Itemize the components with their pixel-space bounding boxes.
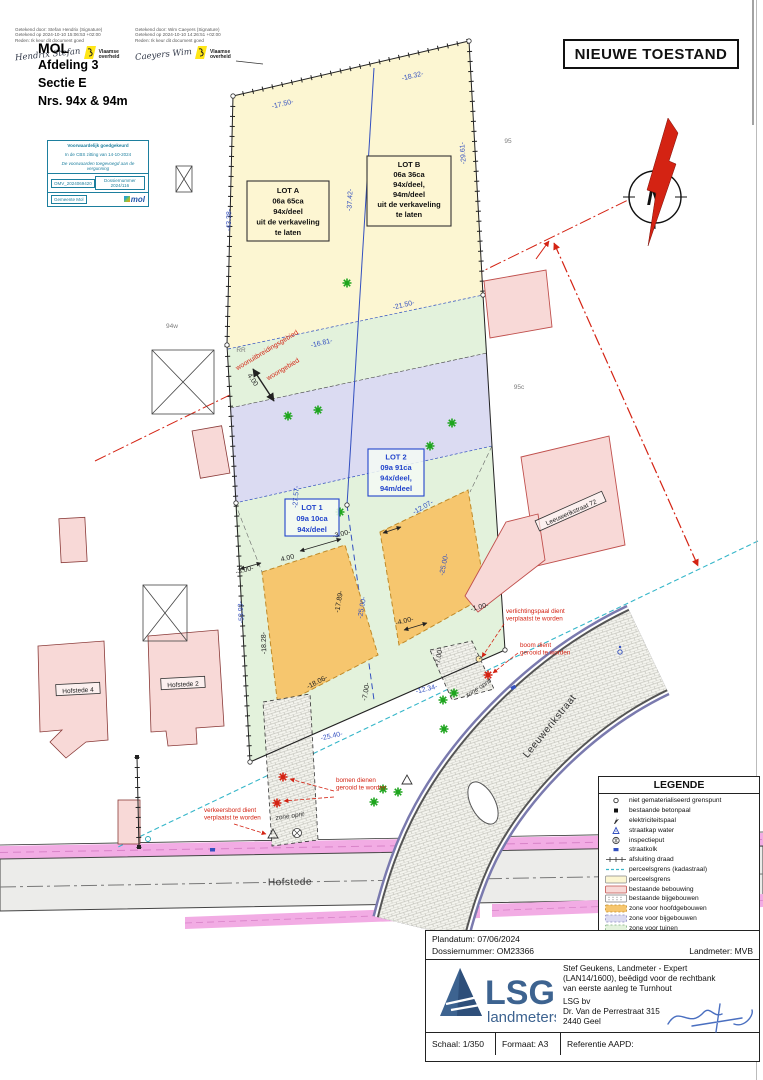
red-annotation: bomen dienengerooid te worden: [336, 777, 387, 792]
traffic-sign-icon: [402, 775, 412, 784]
legend-label: elektriciteitspaal: [629, 817, 676, 824]
vlaamse-overheid-label: Vlaamse overheid: [210, 50, 231, 61]
legend-label: zone voor hoofdgebouwen: [629, 905, 707, 912]
legend-label: perceelsgrens (kadastraal): [629, 866, 707, 873]
parcel-number-label: 95: [504, 138, 512, 145]
legend-label: inspectieput: [629, 837, 664, 844]
legend-row: inspectieput: [599, 835, 759, 845]
schaal-label: Schaal: 1/350: [426, 1033, 496, 1055]
text-line: van eerste aanleg te Turnhout: [563, 984, 755, 994]
inspection-pit-icon: [293, 829, 302, 838]
lot-label-line: 94x/deel,: [393, 180, 425, 189]
red-annotation: verlichtingspaal dientverplaatst te word…: [506, 608, 565, 623]
nieuwe-toestand-box: NIEUWE TOESTAND: [563, 39, 739, 69]
omv-number: OMV_2024069420: [51, 179, 95, 188]
street-gully-icon: [602, 845, 629, 854]
street-gully-icon: [210, 848, 215, 852]
lot-label-line: 94x/deel: [297, 525, 327, 534]
tree-icon: [314, 406, 323, 415]
tree-icon: [450, 689, 459, 698]
lot-label-line: uit de verkaveling: [256, 218, 320, 227]
approval-stamp-box: Voorwaardelijk goedgekeurd In de CBS zit…: [47, 140, 149, 207]
lot-label-line: 94m/deel: [380, 484, 412, 493]
existing-outbuildings: [143, 166, 214, 641]
building-label: Hofstede 2: [161, 676, 206, 689]
lot-label-box-lot_a: LOT A06a 65ca94x/deeluit de verkavelingt…: [247, 181, 329, 241]
title-block: Plandatum: 07/06/2024 Dossiernummer: OM2…: [425, 930, 760, 1062]
tree-icon: [394, 788, 403, 797]
tree-icon: [448, 419, 457, 428]
lot-label-line: LOT 2: [385, 453, 406, 462]
legend-label: zone voor bijgebouwen: [629, 915, 697, 922]
tree-to-remove-icon: [279, 773, 288, 782]
street-label: Hofstede: [268, 877, 312, 889]
main-zone-swatch-icon: [602, 904, 629, 913]
outbuilding-swatch-icon: [602, 894, 629, 903]
legend-row: perceelsgrens: [599, 874, 759, 884]
elec-pole-icon: [602, 816, 629, 825]
legend-row: bestaande bebouwing: [599, 884, 759, 894]
point-circle-icon: [602, 796, 629, 805]
tree-icon: [440, 725, 449, 734]
lot-label-box-lot_b: LOT B06a 36ca94x/deel,94m/deeluit de ver…: [367, 156, 451, 226]
dimension-label: -18.28-: [261, 631, 269, 654]
stamp-line: Reden: Ik keur dit document goed: [135, 38, 255, 43]
inspection-pit-icon: [602, 836, 629, 845]
fence-line-icon: [602, 855, 629, 864]
legend: LEGENDE niet gematerialiseerd grenspuntb…: [598, 776, 760, 937]
legend-label: perceelsgrens: [629, 876, 670, 883]
parcel-number-label: 95c: [514, 384, 525, 391]
afdeling-label: Afdeling 3: [38, 56, 128, 74]
legend-row: perceelsgrens (kadastraal): [599, 865, 759, 875]
lot-label-line: 09a 91ca: [380, 463, 412, 472]
cadastral-line-icon: [602, 865, 629, 874]
lot-label-line: 94x/deel,: [380, 474, 412, 483]
lsg-logo-text: LSG: [485, 974, 555, 1012]
legend-row: niet gematerialiseerd grenspunt: [599, 796, 759, 806]
dimension-label: -43.38-: [226, 208, 233, 231]
water-cap-icon: [602, 826, 629, 835]
lot-label-line: LOT A: [277, 186, 300, 195]
text-line: (LAN14/1600), beëdigd voor de rechtbank: [563, 974, 755, 984]
lot-label-line: 09a 10ca: [296, 514, 328, 523]
lsg-logo: LSG landmeters: [426, 960, 559, 1032]
vlaamse-overheid-logo-icon: [195, 46, 207, 64]
gemeente-label: Gemeente Mol: [51, 195, 87, 204]
plandatum-label: Plandatum: 07/06/2024: [432, 933, 753, 945]
lot-label-line: LOT B: [398, 160, 421, 169]
legend-label: bestaande bebouwing: [629, 886, 694, 893]
dimension-label: -53.93-: [237, 600, 245, 623]
building-label: Hofstede 4: [56, 682, 101, 695]
lot-label-line: 06a 36ca: [393, 170, 425, 179]
legend-label: bestaande betonpaal: [629, 807, 691, 814]
tree-icon: [426, 442, 435, 451]
tree-icon: [284, 412, 293, 421]
lot-label-line: 06a 65ca: [272, 197, 304, 206]
approval-row: OMV_2024069420 Dossiernummer 2024/116: [48, 173, 148, 192]
approval-row: De voorwaarden toegevoegd aan de vergunn…: [48, 159, 148, 173]
legend-label: straatkap water: [629, 827, 674, 834]
square-black-icon: [602, 806, 629, 815]
legend-row: straatkolk: [599, 845, 759, 855]
lot-label-line: 94m/deel: [393, 190, 425, 199]
lot-label-line: uit de verkaveling: [377, 200, 441, 209]
legend-row: zone voor hoofdgebouwen: [599, 904, 759, 914]
signature-stamp-right: Getekend door: Wim Caeyers (Signature) G…: [135, 27, 255, 64]
lot-label-line: te laten: [396, 210, 423, 219]
parcel-number-label: RR: [236, 347, 246, 354]
red-annotation: verkeersbord dientverplaatst te worden: [204, 807, 261, 822]
plan-sheet: N LOT A06a 65ca94x/deeluit de verkavelin…: [0, 0, 763, 1080]
lot-label-line: te laten: [275, 228, 302, 237]
tree-to-remove-icon: [273, 799, 282, 808]
lot-label-line: 94x/deel: [273, 207, 303, 216]
legend-row: afsluiting draad: [599, 855, 759, 865]
approval-row: Gemeente Mol mol: [48, 192, 148, 206]
legend-label: bestaande bijgebouwen: [629, 895, 699, 902]
legend-label: niet gematerialiseerd grenspunt: [629, 797, 721, 804]
text-line: Stef Geukens, Landmeter - Expert: [563, 964, 755, 974]
tree-icon: [439, 696, 448, 705]
handwritten-signature: Caeyers Wim: [135, 47, 193, 63]
tree-icon: [343, 279, 352, 288]
lot-label-box-lot_2: LOT 209a 91ca94x/deel,94m/deel: [368, 449, 424, 496]
lsg-logo-subtext: landmeters: [487, 1009, 556, 1026]
parcel-swatch-icon: [602, 875, 629, 884]
municipality-label: MOL: [38, 40, 128, 56]
landmeter-label: Landmeter: MVB: [689, 945, 753, 957]
legend-title: LEGENDE: [599, 777, 759, 794]
approval-row: In de CBS zitting van 14-10-2024: [48, 150, 148, 159]
legend-label: afsluiting draad: [629, 856, 674, 863]
formaat-label: Formaat: A3: [496, 1033, 561, 1055]
legend-row: elektriciteitspaal: [599, 816, 759, 826]
north-arrow: N: [623, 118, 687, 246]
annex-zone-swatch-icon: [602, 914, 629, 923]
referentie-label: Referentie AAPD:: [561, 1033, 759, 1055]
surveyor-signature: [664, 998, 759, 1034]
title-block-footer: Schaal: 1/350 Formaat: A3 Referentie AAP…: [426, 1033, 759, 1055]
building-swatch-icon: [602, 885, 629, 894]
dimension-label: -37.42-: [346, 188, 354, 211]
dossier-number: Dossiernummer 2024/116: [95, 176, 145, 190]
surveyor-info: Stef Geukens, Landmeter - Expert(LAN14/1…: [559, 960, 759, 1032]
driveway-lot1: [263, 694, 318, 846]
plan-state-title: NIEUWE TOESTAND: [575, 46, 728, 63]
legend-row: zone voor bijgebouwen: [599, 914, 759, 924]
sectie-label: Sectie E: [38, 74, 128, 92]
parcel-numbers-label: Nrs. 94x & 94m: [38, 92, 128, 110]
legend-row: bestaande bijgebouwen: [599, 894, 759, 904]
lot-label-line: LOT 1: [301, 503, 322, 512]
legend-row: straatkap water: [599, 825, 759, 835]
legend-label: straatkolk: [629, 846, 657, 853]
parcel-number-label: 94w: [166, 323, 178, 330]
dimension-label: -25.40-: [320, 731, 344, 743]
title-block-header: Plandatum: 07/06/2024 Dossiernummer: OM2…: [426, 931, 759, 960]
tree-icon: [370, 798, 379, 807]
cadastral-header: MOL Afdeling 3 Sectie E Nrs. 94x & 94m: [38, 40, 128, 110]
mol-logo-icon: mol: [124, 196, 145, 204]
legend-row: bestaande betonpaal: [599, 806, 759, 816]
approval-row: Voorwaardelijk goedgekeurd: [48, 141, 148, 150]
